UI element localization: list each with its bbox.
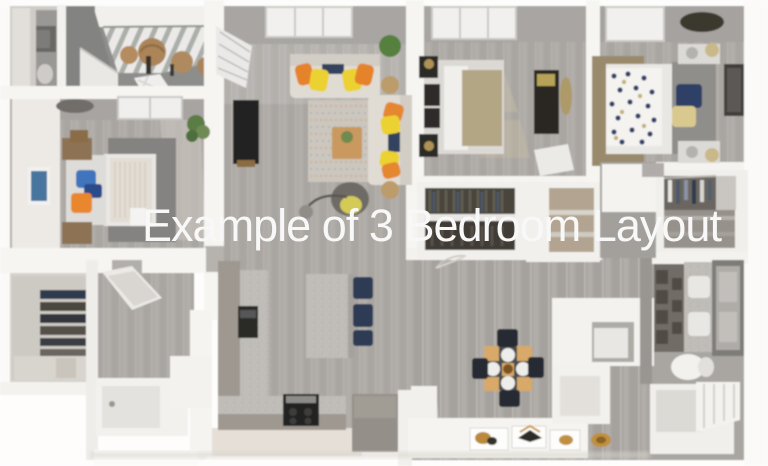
svg-text:Example of 3 Bedroom Layout: Example of 3 Bedroom Layout bbox=[142, 200, 722, 251]
